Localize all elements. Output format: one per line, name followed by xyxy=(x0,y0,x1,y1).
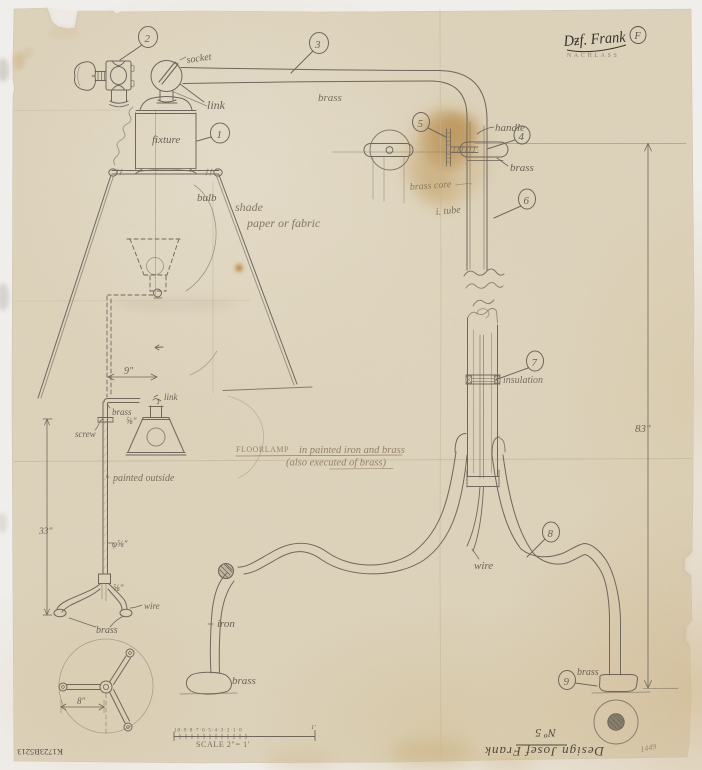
svg-text:7: 7 xyxy=(532,357,538,369)
svg-text:brass: brass xyxy=(96,625,118,636)
svg-text:iron: iron xyxy=(217,618,235,630)
svg-text:8: 8 xyxy=(548,528,554,540)
svg-text:brass: brass xyxy=(510,162,534,174)
svg-text:3: 3 xyxy=(314,39,321,51)
svg-text:SCALE 2″= 1′: SCALE 2″= 1′ xyxy=(196,740,250,749)
svg-text:screw: screw xyxy=(75,429,96,439)
svg-text:link: link xyxy=(164,392,179,402)
svg-text:shade: shade xyxy=(235,200,264,214)
svg-text:painted outside: painted outside xyxy=(112,473,175,484)
svg-text:83″: 83″ xyxy=(635,423,651,435)
svg-text:wire: wire xyxy=(474,560,493,572)
svg-text:F: F xyxy=(634,31,642,42)
svg-text:1: 1 xyxy=(217,129,223,141)
svg-text:bulb: bulb xyxy=(197,192,217,204)
svg-text:2: 2 xyxy=(145,33,151,45)
svg-text:brass: brass xyxy=(232,675,256,687)
svg-text:insulation: insulation xyxy=(503,375,543,386)
svg-text:9: 9 xyxy=(564,676,570,688)
svg-text:⅝″: ⅝″ xyxy=(113,583,124,593)
svg-text:wire: wire xyxy=(144,601,160,611)
svg-text:paper or fabric: paper or fabric xyxy=(246,216,321,230)
svg-text:link: link xyxy=(207,98,226,112)
svg-text:K1723B5213: K1723B5213 xyxy=(17,747,63,757)
svg-text:1′: 1′ xyxy=(311,724,316,731)
svg-text:9″: 9″ xyxy=(124,366,134,377)
svg-text:6: 6 xyxy=(524,195,530,207)
svg-text:5: 5 xyxy=(418,118,424,130)
svg-text:handle: handle xyxy=(495,122,525,134)
svg-text:10·9·8·7·6·5·4·3·2·1·0: 10·9·8·7·6·5·4·3·2·1·0 xyxy=(174,729,243,734)
svg-text:Nº 5: Nº 5 xyxy=(535,726,557,740)
svg-text:φ⅝″: φ⅝″ xyxy=(112,539,128,549)
svg-text:⅝″: ⅝″ xyxy=(126,416,137,426)
svg-text:33″: 33″ xyxy=(38,527,54,537)
svg-text:(also executed of brass): (also executed of brass) xyxy=(286,458,387,469)
svg-text:brass: brass xyxy=(318,92,342,104)
svg-text:brass: brass xyxy=(577,667,599,678)
svg-text:8″: 8″ xyxy=(77,696,86,706)
svg-text:NACHLASS: NACHLASS xyxy=(567,53,619,59)
svg-text:Design Josef Frank: Design Josef Frank xyxy=(484,744,605,759)
svg-text:in painted iron and brass: in painted iron and brass xyxy=(299,445,405,456)
svg-text:fixture: fixture xyxy=(152,134,180,146)
